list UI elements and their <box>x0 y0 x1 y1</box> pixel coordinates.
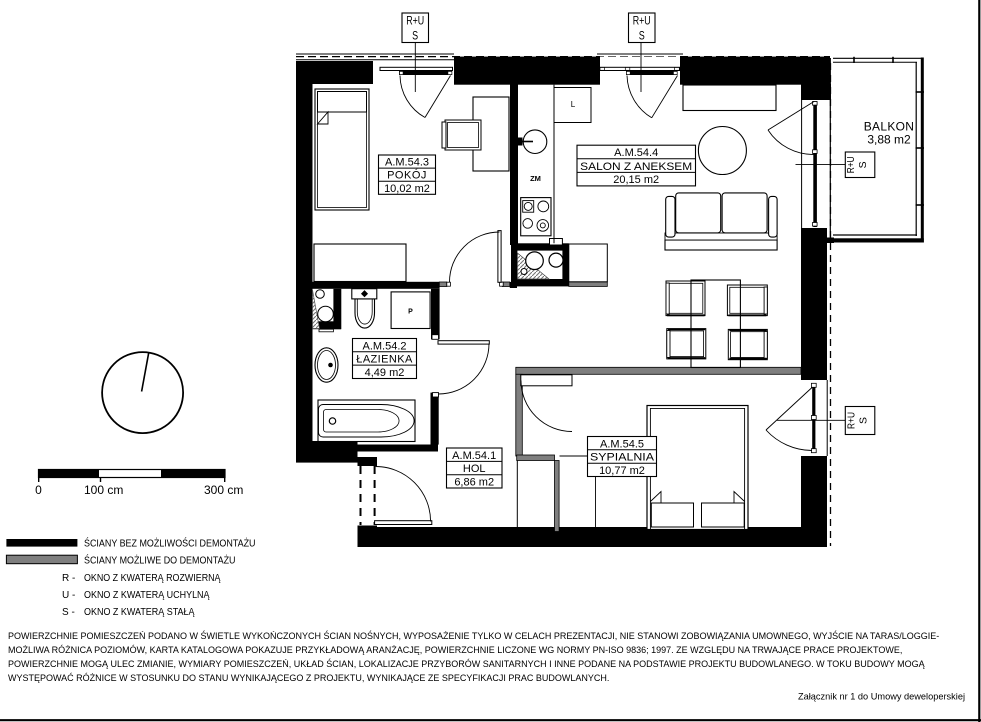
svg-text:A.M.54.2: A.M.54.2 <box>362 340 406 352</box>
svg-text:R+U: R+U <box>845 156 857 173</box>
svg-text:WYSTĘPOWAĆ RÓŻNICE W STOSUNKU: WYSTĘPOWAĆ RÓŻNICE W STOSUNKU DO STANU W… <box>8 673 609 683</box>
svg-text:ŚCIANY BEZ MOŻLIWOŚCI DEMONTAŻ: ŚCIANY BEZ MOŻLIWOŚCI DEMONTAŻU <box>84 537 256 550</box>
svg-text:R -: R - <box>62 573 75 584</box>
svg-text:20,15 m2: 20,15 m2 <box>613 174 659 186</box>
svg-text:A.M.54.3: A.M.54.3 <box>385 157 429 169</box>
svg-text:R+U: R+U <box>846 412 858 429</box>
svg-text:S -: S - <box>62 607 75 618</box>
svg-text:Załącznik nr 1 do Umowy dewelo: Załącznik nr 1 do Umowy deweloperskiej <box>798 692 965 702</box>
svg-text:R+U: R+U <box>633 13 651 27</box>
svg-text:OKNO Z KWATERĄ ROZWIERNĄ: OKNO Z KWATERĄ ROZWIERNĄ <box>84 573 221 584</box>
svg-text:10,02 m2: 10,02 m2 <box>384 183 430 195</box>
svg-text:ZM: ZM <box>530 174 541 183</box>
svg-text:4,49 m2: 4,49 m2 <box>365 367 405 379</box>
svg-text:A.M.54.1: A.M.54.1 <box>452 450 496 462</box>
svg-text:POKÓJ: POKÓJ <box>387 169 427 182</box>
svg-text:10,77 m2: 10,77 m2 <box>599 465 645 477</box>
svg-text:SYPIALNIA: SYPIALNIA <box>590 452 655 464</box>
svg-text:R+U: R+U <box>406 13 424 27</box>
svg-text:S: S <box>412 29 418 43</box>
svg-text:SALON Z ANEKSEM: SALON Z ANEKSEM <box>580 161 692 173</box>
svg-text:POWIERZCHNIE POMIESZCZEŃ PODAN: POWIERZCHNIE POMIESZCZEŃ PODANO W ŚWIETL… <box>8 630 939 641</box>
svg-text:OKNO Z KWATERĄ STAŁĄ: OKNO Z KWATERĄ STAŁĄ <box>84 607 195 618</box>
svg-text:S: S <box>858 417 870 424</box>
svg-text:HOL: HOL <box>463 463 486 475</box>
svg-text:A.M.54.5: A.M.54.5 <box>600 438 644 450</box>
svg-text:ŚCIANY MOŻLIWE DO DEMONTAŻU: ŚCIANY MOŻLIWE DO DEMONTAŻU <box>84 553 236 566</box>
svg-text:S: S <box>857 161 869 168</box>
svg-text:100 cm: 100 cm <box>84 483 123 497</box>
svg-text:ŁAZIENKA: ŁAZIENKA <box>356 354 413 366</box>
svg-text:300 cm: 300 cm <box>204 483 243 497</box>
svg-text:P: P <box>408 309 413 316</box>
svg-text:3,88 m2: 3,88 m2 <box>867 133 911 147</box>
svg-text:A.M.54.4: A.M.54.4 <box>614 147 658 159</box>
svg-text:MOŻLIWA RÓŻNICA POZIOMÓW, KART: MOŻLIWA RÓŻNICA POZIOMÓW, KARTA KATALOGO… <box>8 645 902 655</box>
svg-text:L: L <box>571 100 576 109</box>
svg-text:0: 0 <box>35 483 42 497</box>
svg-text:POWIERZCHNIE MOGĄ ULEC ZMIANIE: POWIERZCHNIE MOGĄ ULEC ZMIANIE, WYMIARY … <box>8 658 926 669</box>
svg-text:OKNO Z KWATERĄ UCHYLNĄ: OKNO Z KWATERĄ UCHYLNĄ <box>84 590 210 601</box>
svg-text:S: S <box>639 29 645 43</box>
svg-text:6,86 m2: 6,86 m2 <box>454 477 494 489</box>
svg-text:U -: U - <box>62 590 75 601</box>
svg-text:BALKON: BALKON <box>864 120 915 134</box>
